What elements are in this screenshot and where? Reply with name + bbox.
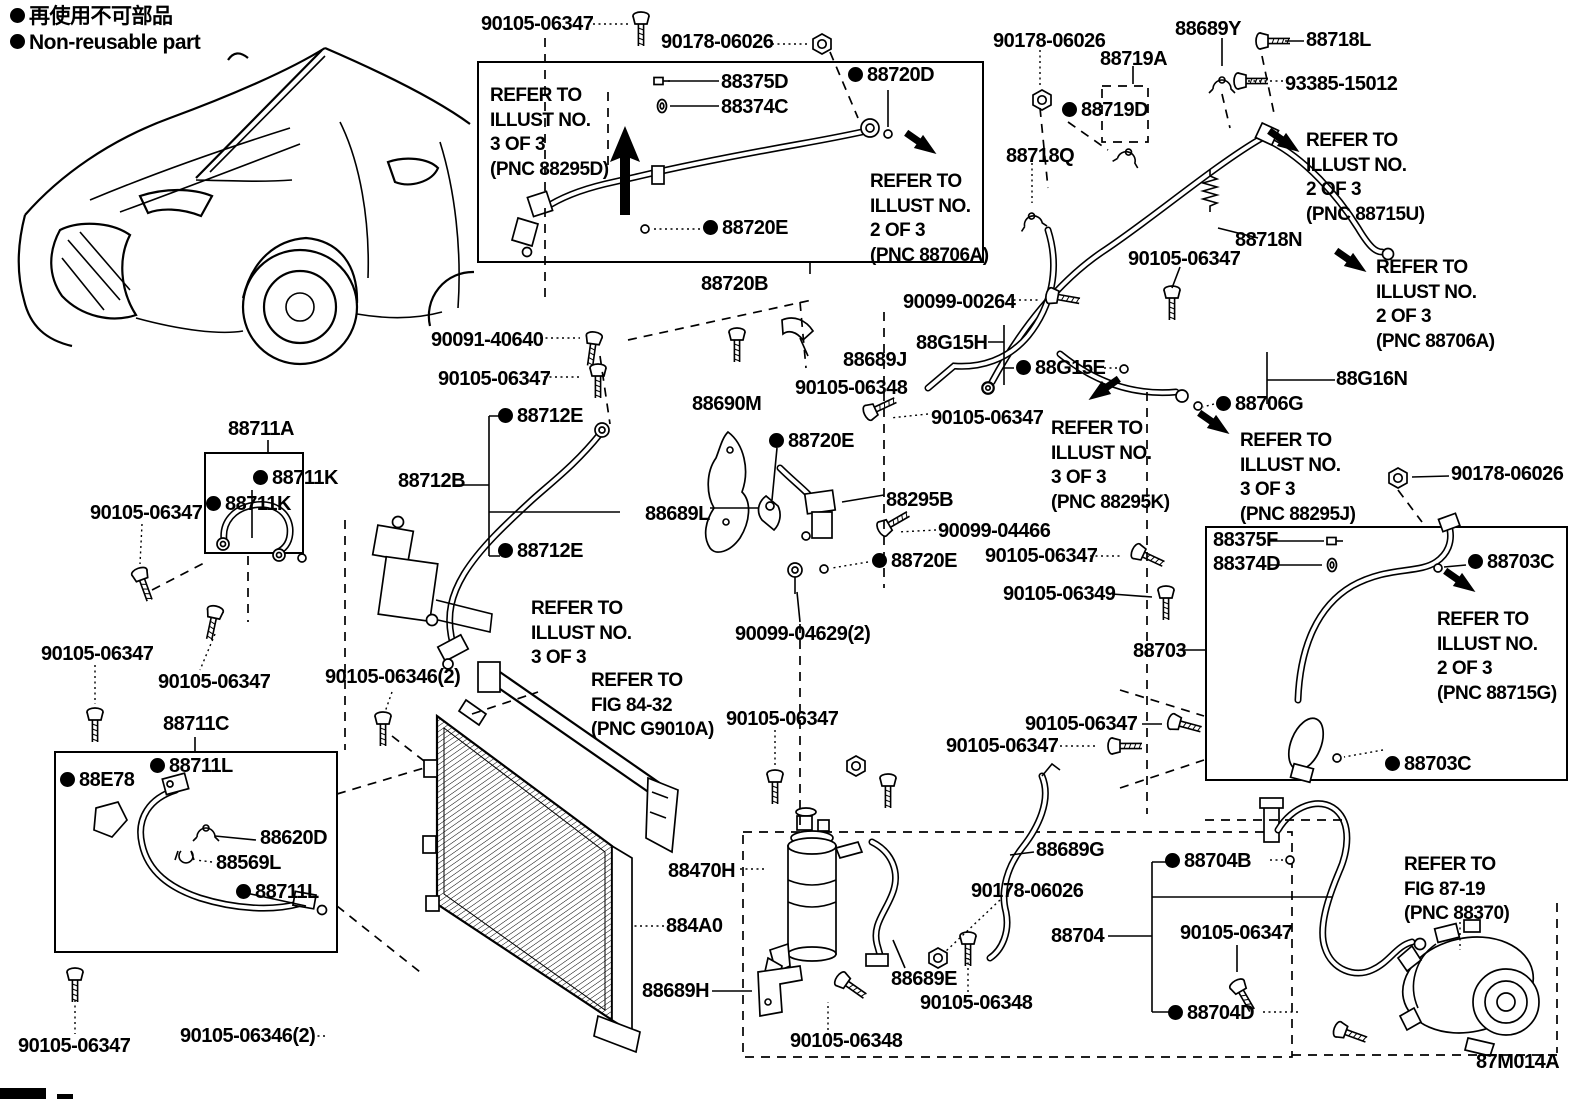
refer-note: REFER TO ILLUST NO. 2 OF 3 (PNC 88715G): [1437, 608, 1557, 707]
part-label: 90099-04629(2): [735, 624, 870, 645]
part-label: 90105-06349: [1003, 584, 1115, 605]
label-text: REFER TO ILLUST NO. 2 OF 3 (PNC 88715G): [1437, 608, 1557, 707]
part-label: 88718Q: [1006, 146, 1074, 167]
non-reusable-icon: [498, 543, 513, 558]
label-text: 884A0: [666, 916, 722, 937]
label-text: 88719A: [1100, 49, 1167, 70]
part-label: 88720B: [701, 274, 768, 295]
part-label: 88374D: [1213, 554, 1280, 575]
part-label: 88711L: [236, 882, 319, 903]
label-text: 88703: [1133, 641, 1186, 662]
part-label: 88718N: [1235, 230, 1302, 251]
part-label: 90105-06348: [795, 378, 907, 399]
label-text: 90091-40640: [431, 330, 543, 351]
part-label: 90105-06346(2): [325, 667, 460, 688]
non-reusable-icon: [60, 772, 75, 787]
refer-note: REFER TO ILLUST NO. 3 OF 3 (PNC 88295J): [1240, 429, 1355, 528]
label-text: 88704B: [1184, 851, 1251, 872]
label-text: 88470H: [668, 861, 735, 882]
part-label: 88719D: [1062, 100, 1148, 121]
label-text: 88719D: [1081, 100, 1148, 121]
part-label: 90178-06026: [1451, 464, 1563, 485]
part-label: 88712B: [398, 471, 465, 492]
label-text: 88G16N: [1336, 369, 1408, 390]
part-label: 88295B: [886, 490, 953, 511]
label-text: 88689Y: [1175, 19, 1241, 40]
label-text: 88720D: [867, 65, 934, 86]
part-label: 93385-15012: [1285, 74, 1397, 95]
part-label: 88689H: [642, 981, 709, 1002]
non-reusable-icon: [1385, 756, 1400, 771]
refer-note: REFER TO ILLUST NO. 2 OF 3 (PNC 88715U): [1306, 129, 1425, 228]
label-text: 90105-06347: [726, 709, 838, 730]
part-label: 88704: [1051, 926, 1104, 947]
part-label: 90105-06347: [1025, 714, 1137, 735]
label-text: REFER TO ILLUST NO. 3 OF 3 (PNC 88295K): [1051, 417, 1170, 516]
part-label: 88711K: [206, 494, 291, 515]
label-text: 90105-06347: [931, 408, 1043, 429]
non-reusable-icon: [1165, 853, 1180, 868]
non-reusable-icon: [236, 884, 251, 899]
part-label: 88375F: [1213, 530, 1278, 551]
label-text: 90105-06347: [946, 736, 1058, 757]
refer-note: REFER TO ILLUST NO. 3 OF 3: [531, 597, 632, 671]
part-label: 88720D: [848, 65, 934, 86]
non-reusable-icon: [703, 220, 718, 235]
part-label: 90105-06347: [726, 709, 838, 730]
non-reusable-icon: [498, 408, 513, 423]
part-label: 88375D: [721, 72, 788, 93]
part-label: 88704D: [1168, 1003, 1254, 1024]
label-text: 90178-06026: [993, 31, 1105, 52]
part-label: 90105-06347: [931, 408, 1043, 429]
non-reusable-icon: [150, 758, 165, 773]
part-label: 88711A: [228, 419, 294, 440]
part-label: 90105-06348: [790, 1031, 902, 1052]
label-text: 90105-06348: [790, 1031, 902, 1052]
part-label: 88374C: [721, 97, 788, 118]
label-text: 90178-06026: [1451, 464, 1563, 485]
label-text: 90105-06347: [481, 14, 593, 35]
part-label: 88712E: [498, 541, 583, 562]
non-reusable-icon: [253, 470, 268, 485]
legend-en: Non-reusable part: [10, 32, 200, 54]
part-label: 88720E: [872, 551, 957, 572]
label-text: 再使用不可部品: [29, 6, 173, 28]
label-text: 88720E: [722, 218, 788, 239]
label-text: 90105-06348: [795, 378, 907, 399]
label-text: 88704: [1051, 926, 1104, 947]
part-label: 88703C: [1468, 552, 1554, 573]
label-text: 88718L: [1306, 30, 1371, 51]
label-text: 88712E: [517, 406, 583, 427]
label-text: 90178-06026: [971, 881, 1083, 902]
label-text: 88720B: [701, 274, 768, 295]
label-text: 88704D: [1187, 1003, 1254, 1024]
label-text: REFER TO ILLUST NO. 3 OF 3: [531, 597, 632, 671]
part-label: 90105-06347: [946, 736, 1058, 757]
label-text: 90105-06347: [158, 672, 270, 693]
label-text: 90105-06347: [1128, 249, 1240, 270]
refer-note: REFER TO FIG 84-32 (PNC G9010A): [591, 669, 714, 743]
label-text: 88620D: [260, 828, 327, 849]
label-text: 90099-00264: [903, 292, 1015, 313]
label-text: 88706G: [1235, 394, 1303, 415]
label-text: REFER TO ILLUST NO. 2 OF 3 (PNC 88715U): [1306, 129, 1425, 228]
label-text: 88690M: [692, 394, 761, 415]
part-label: 88689L: [645, 504, 710, 525]
part-label: 88689G: [1036, 840, 1104, 861]
label-text: 88689H: [642, 981, 709, 1002]
label-text: 88718N: [1235, 230, 1302, 251]
part-label: 90091-40640: [431, 330, 543, 351]
part-label: 88G16N: [1336, 369, 1408, 390]
label-text: 90105-06347: [41, 644, 153, 665]
part-label: 88711L: [150, 756, 233, 777]
label-text: 93385-15012: [1285, 74, 1397, 95]
label-text: 88374C: [721, 97, 788, 118]
label-text: 88711C: [163, 714, 229, 735]
part-label: 88704B: [1165, 851, 1251, 872]
part-label: 90099-00264: [903, 292, 1015, 313]
label-text: 90105-06349: [1003, 584, 1115, 605]
non-reusable-icon: [848, 67, 863, 82]
part-label: 88690M: [692, 394, 761, 415]
label-text: 90105-06347: [985, 546, 1097, 567]
part-label: 88711K: [253, 468, 338, 489]
non-reusable-icon: [10, 34, 25, 49]
refer-note: REFER TO ILLUST NO. 3 OF 3 (PNC 88295D): [490, 84, 609, 183]
legend-jp: 再使用不可部品: [10, 6, 173, 28]
part-label: 88E78: [60, 770, 134, 791]
label-text: 88711K: [272, 468, 338, 489]
label-text: REFER TO ILLUST NO. 3 OF 3 (PNC 88295D): [490, 84, 609, 183]
part-label: 90105-06347: [18, 1036, 130, 1057]
part-label: 90105-06347: [438, 369, 550, 390]
part-label: 88689J: [843, 350, 907, 371]
label-text: 88703C: [1404, 754, 1471, 775]
label-text: 90105-06346(2): [325, 667, 460, 688]
non-reusable-icon: [10, 8, 25, 23]
part-label: 88G15E: [1016, 358, 1105, 379]
non-reusable-icon: [1168, 1005, 1183, 1020]
label-text: 88711K: [225, 494, 291, 515]
label-text: 88689E: [891, 969, 957, 990]
label-text: 87M014A: [1476, 1052, 1559, 1073]
label-text: 88295B: [886, 490, 953, 511]
part-label: 90105-06347: [1128, 249, 1240, 270]
part-label: 90105-06347: [985, 546, 1097, 567]
non-reusable-icon: [1062, 102, 1077, 117]
non-reusable-icon: [1468, 554, 1483, 569]
label-text: 90105-06347: [18, 1036, 130, 1057]
figure-code: 87M014A: [1476, 1052, 1559, 1073]
label-text: 88703C: [1487, 552, 1554, 573]
label-text: 88375D: [721, 72, 788, 93]
non-reusable-icon: [1016, 360, 1031, 375]
part-label: 88620D: [260, 828, 327, 849]
refer-note: REFER TO ILLUST NO. 2 OF 3 (PNC 88706A): [870, 170, 989, 269]
non-reusable-icon: [206, 496, 221, 511]
part-label: 88711C: [163, 714, 229, 735]
label-layer: 再使用不可部品Non-reusable part90105-0634790178…: [0, 0, 1592, 1099]
label-text: 88720E: [788, 431, 854, 452]
label-text: 90178-06026: [661, 32, 773, 53]
label-text: 88689L: [645, 504, 710, 525]
part-label: 88718L: [1306, 30, 1371, 51]
label-text: REFER TO FIG 84-32 (PNC G9010A): [591, 669, 714, 743]
label-text: 88711L: [169, 756, 233, 777]
label-text: 88718Q: [1006, 146, 1074, 167]
part-label: 90105-06347: [41, 644, 153, 665]
part-label: 88569L: [216, 853, 281, 874]
label-text: REFER TO FIG 87-19 (PNC 88370): [1404, 853, 1509, 927]
label-text: 88G15H: [916, 333, 988, 354]
label-text: 88720E: [891, 551, 957, 572]
label-text: 90105-06347: [90, 503, 202, 524]
part-label: 88703: [1133, 641, 1186, 662]
label-text: 90105-06346(2): [180, 1026, 315, 1047]
non-reusable-icon: [769, 433, 784, 448]
part-label: 90178-06026: [993, 31, 1105, 52]
part-label: 88470H: [668, 861, 735, 882]
label-text: 88712E: [517, 541, 583, 562]
label-text: REFER TO ILLUST NO. 3 OF 3 (PNC 88295J): [1240, 429, 1355, 528]
label-text: 88375F: [1213, 530, 1278, 551]
label-text: 88711A: [228, 419, 294, 440]
part-label: 88720E: [769, 431, 854, 452]
parts-diagram-canvas: 再使用不可部品Non-reusable part90105-0634790178…: [0, 0, 1592, 1099]
part-label: 884A0: [666, 916, 722, 937]
label-text: 90099-04466: [938, 521, 1050, 542]
part-label: 90178-06026: [971, 881, 1083, 902]
label-text: 90099-04629(2): [735, 624, 870, 645]
part-label: 88719A: [1100, 49, 1167, 70]
part-label: 90105-06346(2): [180, 1026, 315, 1047]
label-text: Non-reusable part: [29, 32, 200, 54]
non-reusable-icon: [872, 553, 887, 568]
refer-note: REFER TO ILLUST NO. 3 OF 3 (PNC 88295K): [1051, 417, 1170, 516]
part-label: 88703C: [1385, 754, 1471, 775]
part-label: 90105-06347: [158, 672, 270, 693]
part-label: 88689E: [891, 969, 957, 990]
part-label: 90099-04466: [938, 521, 1050, 542]
part-label: 90105-06347: [90, 503, 202, 524]
label-text: 88689G: [1036, 840, 1104, 861]
label-text: 90105-06347: [438, 369, 550, 390]
part-label: 90105-06347: [1180, 923, 1292, 944]
label-text: 90105-06347: [1025, 714, 1137, 735]
part-label: 90105-06348: [920, 993, 1032, 1014]
label-text: 88G15E: [1035, 358, 1105, 379]
label-text: 88712B: [398, 471, 465, 492]
label-text: 90105-06348: [920, 993, 1032, 1014]
part-label: 90178-06026: [661, 32, 773, 53]
label-text: 88569L: [216, 853, 281, 874]
part-label: 88706G: [1216, 394, 1303, 415]
label-text: REFER TO ILLUST NO. 2 OF 3 (PNC 88706A): [870, 170, 989, 269]
label-text: 88374D: [1213, 554, 1280, 575]
label-text: 88E78: [79, 770, 134, 791]
part-label: 90105-06347: [481, 14, 593, 35]
label-text: REFER TO ILLUST NO. 2 OF 3 (PNC 88706A): [1376, 256, 1495, 355]
label-text: 88711L: [255, 882, 319, 903]
part-label: 88689Y: [1175, 19, 1241, 40]
label-text: 88689J: [843, 350, 907, 371]
part-label: 88712E: [498, 406, 583, 427]
part-label: 88G15H: [916, 333, 988, 354]
non-reusable-icon: [1216, 396, 1231, 411]
label-text: 90105-06347: [1180, 923, 1292, 944]
refer-note: REFER TO FIG 87-19 (PNC 88370): [1404, 853, 1509, 927]
part-label: 88720E: [703, 218, 788, 239]
refer-note: REFER TO ILLUST NO. 2 OF 3 (PNC 88706A): [1376, 256, 1495, 355]
